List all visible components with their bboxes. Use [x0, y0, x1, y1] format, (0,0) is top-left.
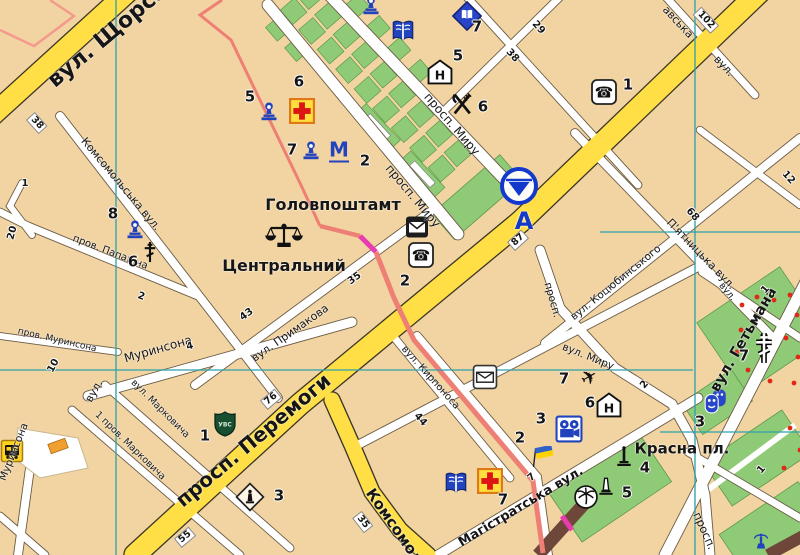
house-number: 1: [200, 429, 210, 444]
flag-icon: [532, 446, 556, 468]
house-number: 7: [498, 493, 508, 508]
house-number: 6: [128, 255, 138, 270]
police-shield-icon: УВС: [213, 411, 237, 437]
monument-icon: [257, 100, 281, 124]
house-number: 7: [559, 372, 569, 387]
hotel-icon: Н: [597, 393, 622, 418]
house-number: 3: [274, 489, 284, 504]
svg-text:Н: Н: [435, 67, 445, 82]
envelope-icon: [473, 365, 498, 390]
house-number: 5: [245, 90, 255, 105]
place-label: Красна пл.: [635, 442, 730, 457]
house-number: 7: [472, 20, 482, 35]
library-book-icon: [390, 18, 416, 44]
monument-icon: [359, 0, 383, 18]
house-number: 3: [536, 412, 546, 427]
svg-text:Н: Н: [604, 400, 614, 415]
hotel-icon: Н: [428, 60, 453, 85]
house-number: 2: [400, 274, 410, 289]
place-label: Головпоштамт: [265, 197, 400, 213]
airplane-icon: ✈: [581, 367, 598, 387]
cinema-icon: [556, 416, 583, 443]
scales-icon: [264, 222, 304, 250]
house-number: 5: [453, 49, 463, 64]
medical-cross-icon: [289, 98, 315, 124]
library-book-icon: [443, 470, 469, 496]
house-number: 1: [623, 78, 633, 93]
house-number: 3: [695, 415, 705, 430]
house-number: 7: [287, 143, 297, 158]
restaurant-icon: [450, 92, 475, 117]
phone-icon: ☎: [408, 242, 434, 268]
house-number: 6: [585, 396, 595, 411]
house-number: 1: [22, 179, 29, 189]
monument-icon: [299, 139, 323, 163]
house-number: 5: [622, 486, 632, 501]
svg-text:УВС: УВС: [218, 422, 232, 429]
house-number: 2: [360, 154, 370, 169]
diamond-monument-icon: [235, 482, 265, 512]
house-number: 7: [739, 349, 749, 364]
place-label: Центральний: [222, 258, 346, 274]
house-number: 6: [478, 100, 488, 115]
house-number: 8: [108, 207, 118, 222]
metro-icon: М: [329, 140, 349, 163]
compass-marker-icon: [496, 165, 542, 211]
house-number: 4: [640, 461, 650, 476]
phone-icon: ☎: [591, 79, 617, 105]
fountain-icon: [751, 531, 771, 551]
svg-text:☎: ☎: [595, 84, 614, 102]
house-number: 6: [294, 75, 304, 90]
map-canvas[interactable]: Н☎М☎✈НУВСвул. ЩорсаКомсомольська вул.про…: [0, 0, 800, 555]
house-number: 2: [515, 431, 525, 446]
obelisk-icon: [595, 476, 617, 498]
column-monument-icon: [612, 445, 636, 469]
place-label: А: [515, 209, 534, 233]
svg-text:☎: ☎: [412, 247, 431, 265]
